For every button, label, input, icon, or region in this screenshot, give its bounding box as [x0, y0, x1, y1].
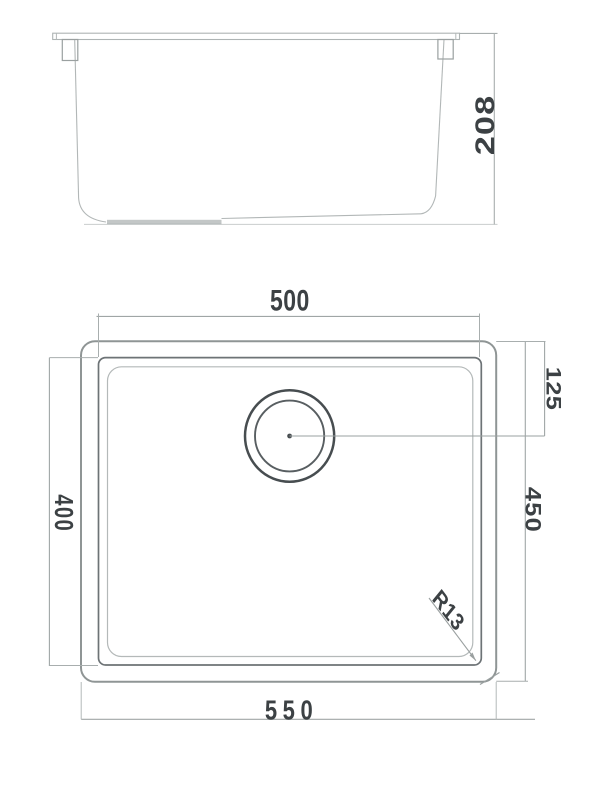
svg-text:208: 208 — [469, 95, 500, 156]
svg-text:550: 550 — [265, 695, 319, 726]
svg-text:125: 125 — [542, 367, 566, 410]
svg-text:400: 400 — [49, 494, 78, 532]
svg-text:500: 500 — [270, 283, 310, 317]
svg-text:450: 450 — [520, 487, 545, 533]
